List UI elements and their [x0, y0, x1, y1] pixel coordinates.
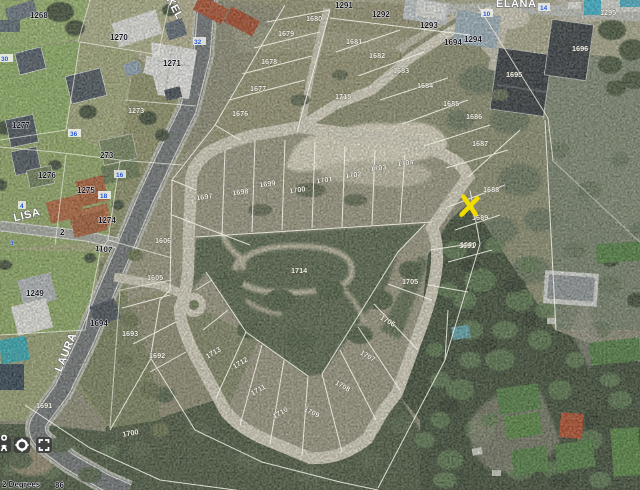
svg-text:1686: 1686	[466, 112, 482, 121]
svg-text:273: 273	[100, 151, 114, 160]
svg-text:1691: 1691	[459, 241, 475, 250]
svg-text:ELANA: ELANA	[496, 0, 536, 10]
svg-text:1676: 1676	[232, 109, 248, 118]
svg-text:1694: 1694	[90, 319, 108, 328]
svg-text:1293: 1293	[420, 21, 438, 30]
svg-text:1606: 1606	[155, 236, 171, 245]
svg-text:1687: 1687	[472, 139, 488, 148]
svg-text:1277: 1277	[12, 121, 30, 130]
svg-text:1268: 1268	[30, 11, 48, 20]
svg-text:1692: 1692	[149, 351, 165, 360]
svg-text:1694: 1694	[444, 38, 462, 47]
svg-text:1295: 1295	[600, 8, 616, 17]
svg-text:4: 4	[20, 203, 24, 210]
svg-text:1715: 1715	[335, 92, 351, 101]
svg-text:1270: 1270	[110, 33, 128, 42]
svg-text:18: 18	[100, 193, 108, 200]
svg-text:1605: 1605	[147, 273, 163, 282]
svg-text:1271: 1271	[163, 59, 181, 68]
svg-text:32: 32	[194, 39, 202, 46]
svg-text:10: 10	[483, 11, 491, 18]
svg-text:1273: 1273	[128, 106, 144, 115]
svg-text:3: 3	[10, 240, 14, 247]
svg-text:30: 30	[1, 56, 9, 63]
svg-text:1291: 1291	[335, 1, 353, 10]
svg-text:1682: 1682	[369, 51, 385, 60]
svg-text:1705: 1705	[402, 277, 418, 286]
svg-text:1274: 1274	[98, 216, 116, 225]
svg-text:2 Degrees: 2 Degrees	[2, 480, 41, 489]
svg-text:14: 14	[540, 5, 548, 12]
svg-text:1695: 1695	[506, 70, 522, 79]
svg-text:1683: 1683	[393, 66, 409, 75]
svg-text:1696: 1696	[572, 44, 588, 53]
svg-text:1693: 1693	[122, 329, 138, 338]
svg-text:1292: 1292	[372, 10, 390, 19]
svg-text:86: 86	[55, 481, 64, 490]
svg-text:1684: 1684	[417, 81, 434, 90]
svg-text:1678: 1678	[261, 57, 277, 66]
svg-text:36: 36	[70, 131, 78, 138]
svg-text:1276: 1276	[38, 171, 56, 180]
svg-text:1249: 1249	[26, 289, 44, 298]
svg-text:1677: 1677	[250, 84, 266, 93]
svg-text:1688: 1688	[483, 185, 499, 194]
svg-text:16: 16	[116, 172, 124, 179]
svg-text:1691: 1691	[36, 401, 52, 410]
svg-text:2: 2	[60, 228, 65, 237]
svg-text:1680: 1680	[306, 14, 322, 23]
svg-text:1681: 1681	[346, 37, 362, 46]
svg-text:1275: 1275	[77, 186, 95, 195]
svg-text:1714: 1714	[291, 266, 308, 275]
svg-text:1685: 1685	[443, 99, 459, 108]
svg-text:1107: 1107	[95, 244, 114, 255]
svg-text:1294: 1294	[464, 35, 482, 44]
svg-text:1679: 1679	[278, 29, 294, 38]
